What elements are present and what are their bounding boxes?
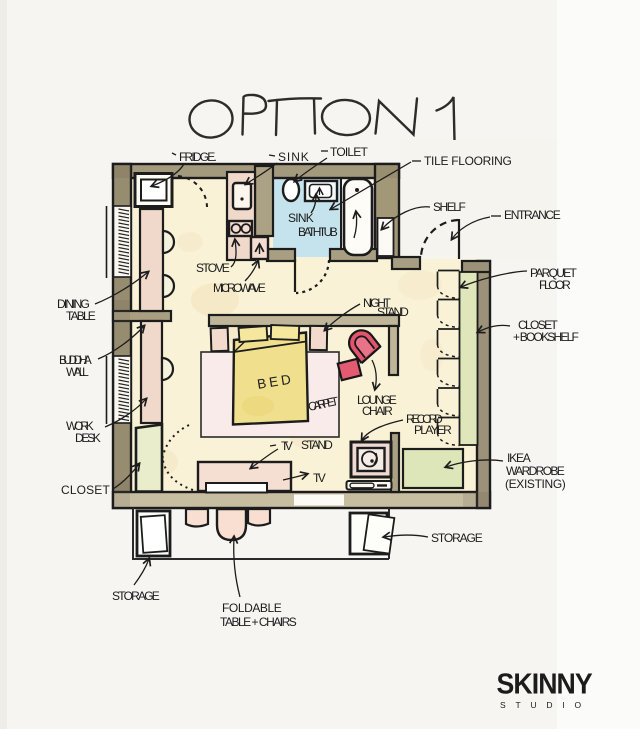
svg-text:TOILET: TOILET [330, 145, 368, 159]
svg-text:CHAIR: CHAIR [362, 404, 393, 418]
svg-text:WALL: WALL [66, 365, 89, 379]
svg-text:TV: TV [281, 439, 293, 453]
svg-text:CLOSET: CLOSET [61, 483, 110, 497]
svg-text:SHELF: SHELF [433, 200, 466, 214]
svg-text:IKEA: IKEA [507, 451, 531, 465]
svg-text:STAND: STAND [377, 305, 409, 319]
svg-text:WARDROBE: WARDROBE [506, 464, 565, 478]
svg-text:SINK: SINK [278, 150, 309, 164]
svg-text:ENTRANCE: ENTRANCE [504, 208, 561, 222]
svg-text:TABLE: TABLE [66, 309, 96, 323]
svg-text:+ BOOKSHELF: + BOOKSHELF [513, 330, 579, 344]
svg-text:STORAGE: STORAGE [112, 589, 160, 603]
svg-text:STUDIO: STUDIO [500, 700, 591, 710]
svg-text:MICROWAVE: MICROWAVE [213, 281, 266, 295]
svg-text:SINK: SINK [288, 211, 314, 225]
svg-text:FRIDGE.: FRIDGE. [179, 150, 217, 164]
svg-text:TV: TV [313, 471, 326, 485]
svg-text:DESK: DESK [75, 431, 101, 445]
svg-text:(EXISTING): (EXISTING) [505, 477, 566, 491]
svg-text:PLAYER: PLAYER [414, 423, 452, 437]
svg-text:BATHTUB: BATHTUB [298, 225, 338, 239]
svg-text:SKINNY: SKINNY [497, 667, 594, 699]
svg-text:STORAGE: STORAGE [431, 531, 483, 545]
svg-text:STOVE: STOVE [196, 261, 230, 275]
svg-text:TILE FLOORING: TILE FLOORING [424, 154, 512, 168]
svg-text:FOLDABLE: FOLDABLE [222, 601, 282, 615]
svg-text:FLOOR: FLOOR [539, 278, 571, 292]
svg-text:STAND: STAND [301, 438, 333, 452]
svg-text:TABLE + CHAIRS: TABLE + CHAIRS [220, 615, 297, 629]
